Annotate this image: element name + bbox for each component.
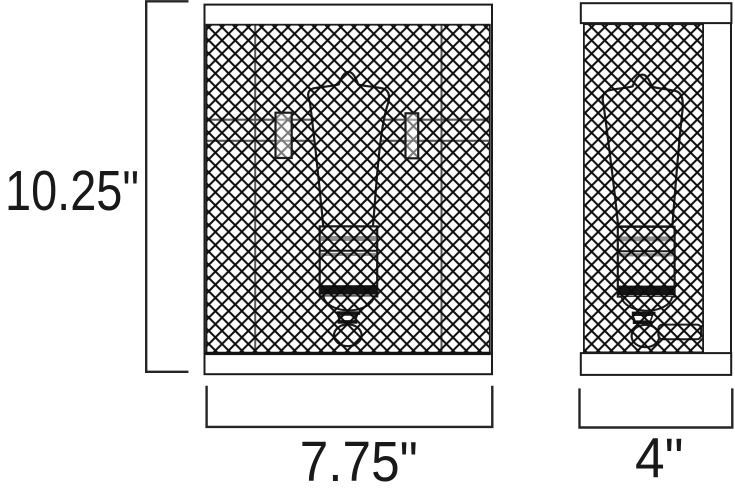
svg-text:10.25": 10.25" bbox=[5, 159, 139, 222]
svg-text:7.75": 7.75" bbox=[300, 430, 418, 493]
svg-text:4": 4" bbox=[635, 426, 684, 489]
